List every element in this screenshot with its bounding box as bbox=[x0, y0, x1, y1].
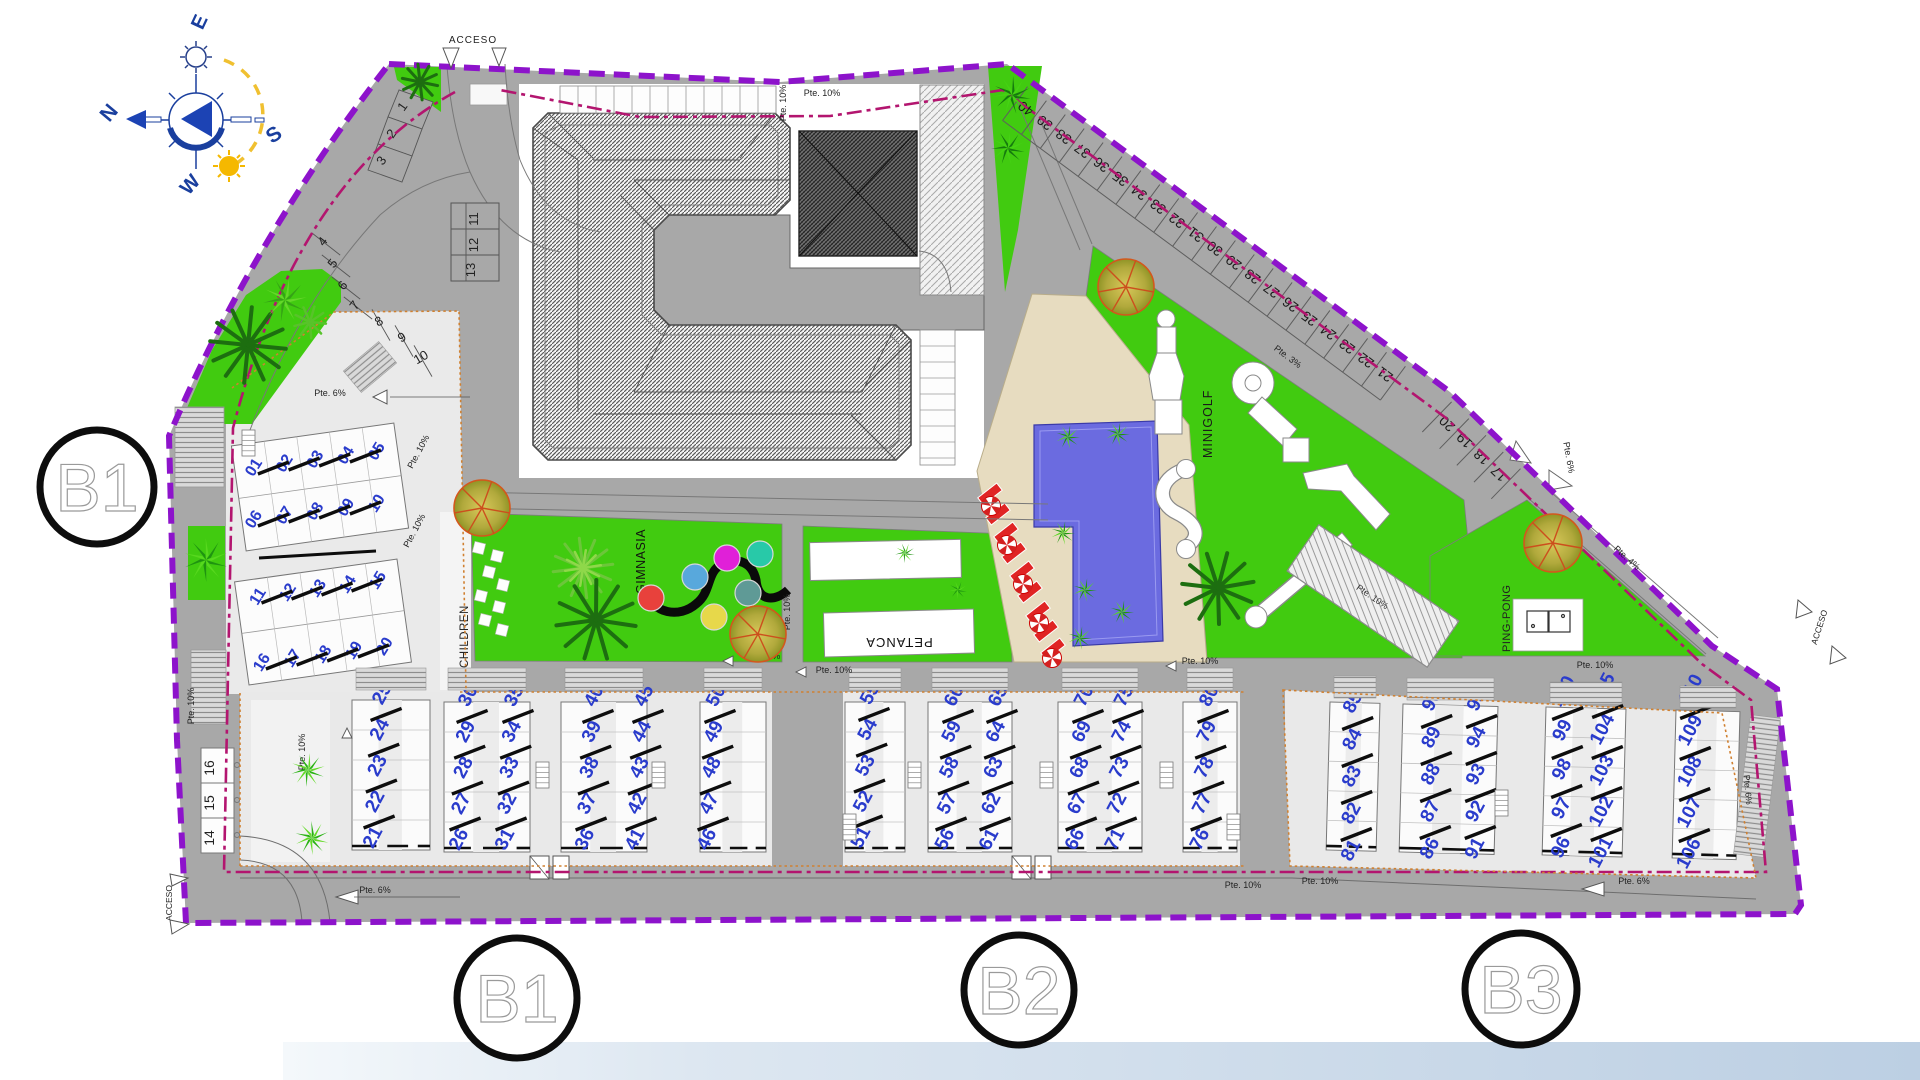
svg-text:Pte. 6%: Pte. 6% bbox=[1618, 876, 1650, 886]
svg-text:Pte. 10%: Pte. 10% bbox=[1302, 876, 1339, 886]
svg-text:11: 11 bbox=[466, 212, 481, 226]
svg-text:16: 16 bbox=[201, 760, 217, 776]
svg-text:E: E bbox=[187, 11, 213, 32]
svg-text:PING-PONG: PING-PONG bbox=[1501, 585, 1513, 652]
svg-text:PETANCA: PETANCA bbox=[865, 635, 932, 650]
svg-text:Pte. 6%: Pte. 6% bbox=[1561, 441, 1576, 474]
svg-text:Pte. 10%: Pte. 10% bbox=[778, 85, 788, 122]
svg-text:Pte. 10%: Pte. 10% bbox=[1225, 880, 1262, 890]
svg-text:ACCESO: ACCESO bbox=[449, 35, 497, 46]
svg-text:14: 14 bbox=[201, 830, 217, 846]
svg-text:B1: B1 bbox=[475, 961, 558, 1037]
svg-text:Pte. 6%: Pte. 6% bbox=[314, 388, 346, 398]
svg-text:Pte. 10%: Pte. 10% bbox=[1182, 656, 1219, 666]
svg-text:S: S bbox=[262, 121, 287, 148]
svg-text:W: W bbox=[176, 170, 205, 199]
svg-text:Pte. 10%: Pte. 10% bbox=[804, 88, 841, 98]
svg-text:Pte. 10%: Pte. 10% bbox=[1577, 660, 1614, 670]
svg-text:12: 12 bbox=[466, 238, 481, 252]
svg-text:Pte. 6%: Pte. 6% bbox=[359, 885, 391, 895]
svg-text:B3: B3 bbox=[1479, 952, 1562, 1028]
svg-text:B2: B2 bbox=[977, 953, 1060, 1029]
svg-text:ACCESO: ACCESO bbox=[164, 885, 174, 921]
svg-text:Pte. 10%: Pte. 10% bbox=[816, 665, 853, 675]
svg-text:15: 15 bbox=[201, 795, 217, 811]
svg-text:GIMNASIA: GIMNASIA bbox=[634, 529, 648, 594]
svg-text:Pte. 10%: Pte. 10% bbox=[186, 688, 196, 725]
svg-text:N: N bbox=[95, 100, 122, 126]
svg-text:13: 13 bbox=[463, 263, 478, 277]
svg-text:B1: B1 bbox=[55, 450, 138, 526]
svg-text:MINIGOLF: MINIGOLF bbox=[1201, 390, 1215, 458]
svg-text:ACCESO: ACCESO bbox=[1809, 608, 1830, 646]
